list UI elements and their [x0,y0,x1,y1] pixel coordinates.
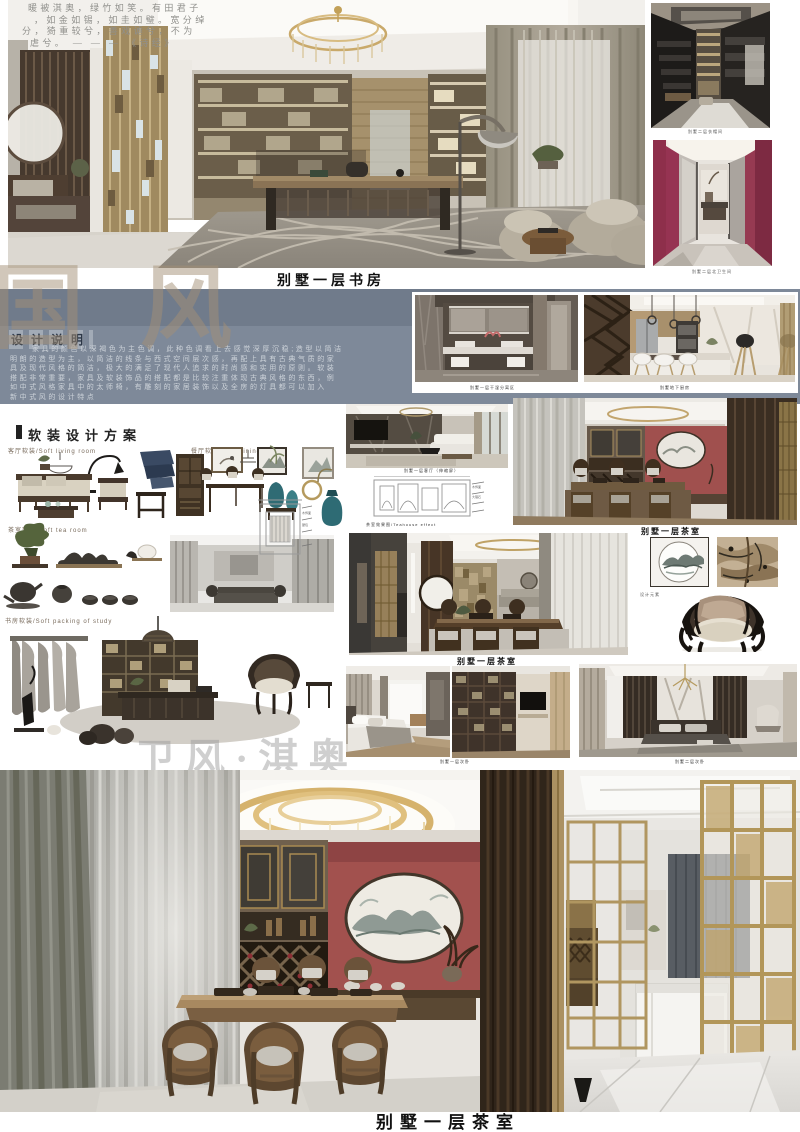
svg-text:木饰面: 木饰面 [472,484,481,489]
svg-text:大理石: 大理石 [472,494,481,499]
svg-text:木饰面: 木饰面 [302,510,311,515]
svg-text:硬包: 硬包 [302,522,308,527]
